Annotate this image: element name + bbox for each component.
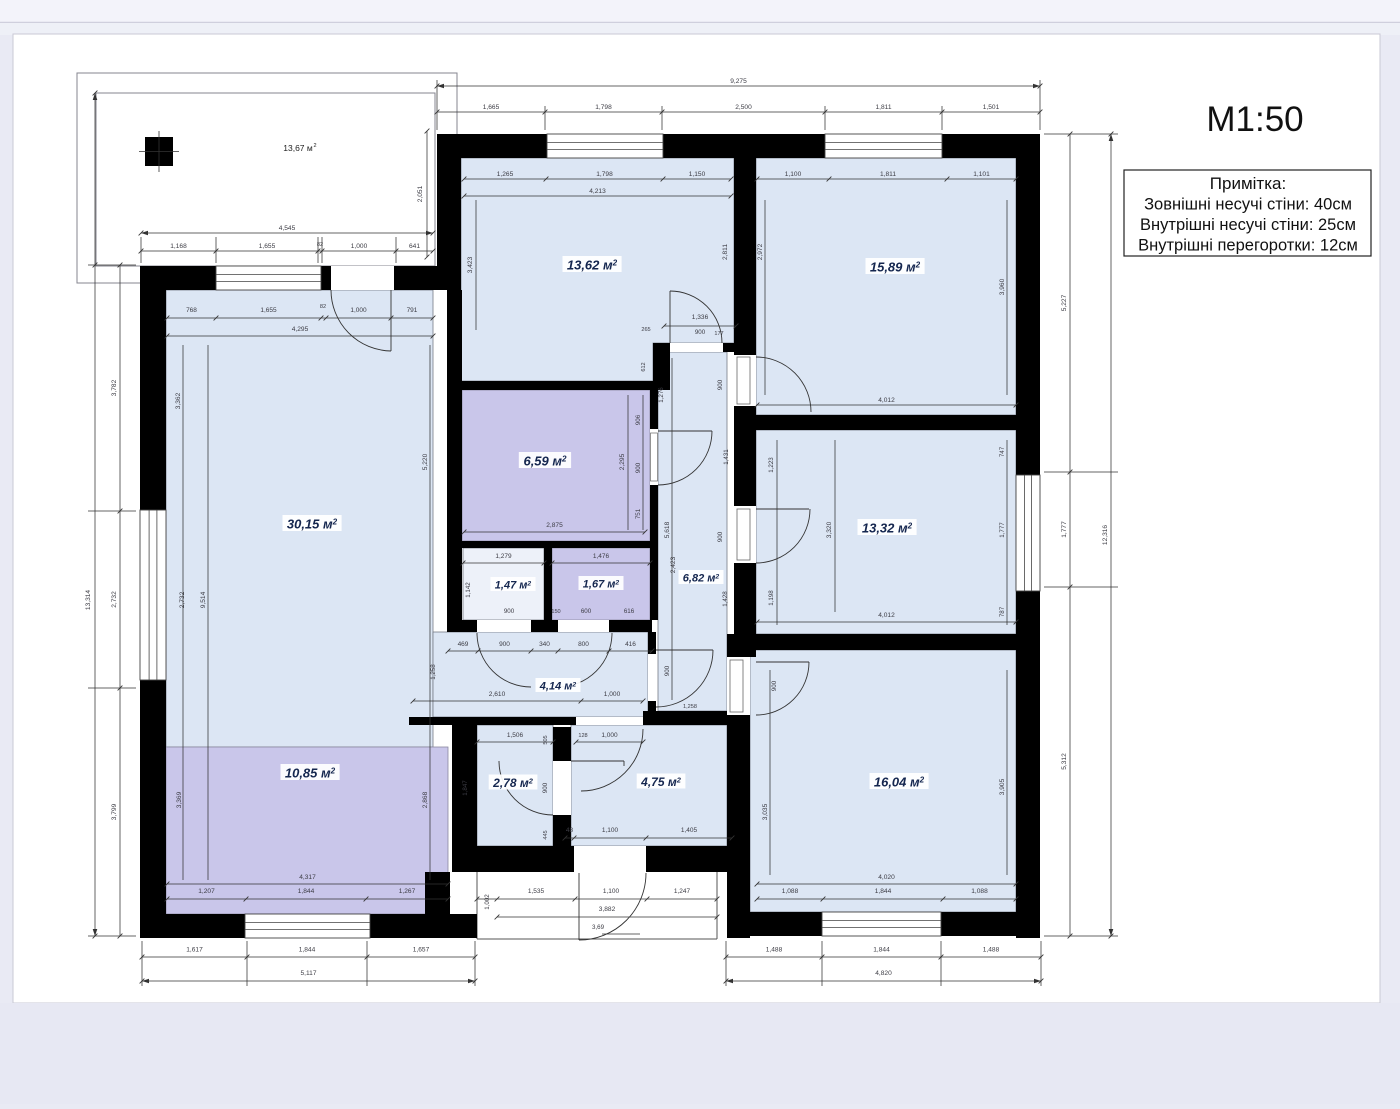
svg-text:1,47 м2: 1,47 м2 <box>495 580 532 592</box>
svg-text:4,14 м2: 4,14 м2 <box>539 681 577 693</box>
svg-text:1,488: 1,488 <box>983 947 1000 954</box>
svg-text:1,101: 1,101 <box>973 171 990 178</box>
svg-text:1,000: 1,000 <box>601 732 618 739</box>
svg-text:Внутрішні несучі стіни: 25см: Внутрішні несучі стіни: 25см <box>1140 216 1356 234</box>
svg-text:1,100: 1,100 <box>785 171 802 178</box>
svg-text:4,317: 4,317 <box>299 874 316 881</box>
svg-text:2,732: 2,732 <box>111 591 118 608</box>
svg-text:30,15 м2: 30,15 м2 <box>287 516 338 531</box>
svg-text:1,088: 1,088 <box>971 888 988 895</box>
svg-text:1,100: 1,100 <box>602 827 619 834</box>
svg-text:1,617: 1,617 <box>186 947 203 954</box>
svg-text:16,04 м2: 16,04 м2 <box>874 774 925 789</box>
svg-text:1,258: 1,258 <box>430 664 437 680</box>
svg-text:6,59 м2: 6,59 м2 <box>523 453 567 468</box>
svg-text:416: 416 <box>625 641 636 648</box>
svg-text:1,476: 1,476 <box>593 553 610 560</box>
svg-text:5,117: 5,117 <box>300 970 316 977</box>
svg-text:15,89 м2: 15,89 м2 <box>870 259 921 274</box>
svg-text:469: 469 <box>458 641 469 648</box>
svg-text:2,295: 2,295 <box>619 453 626 470</box>
svg-text:9,275: 9,275 <box>730 78 747 85</box>
svg-text:4,213: 4,213 <box>589 188 606 195</box>
svg-text:1,777: 1,777 <box>1061 521 1068 538</box>
svg-text:612: 612 <box>641 362 647 371</box>
svg-text:Зовнішні несучі стіни: 40см: Зовнішні несучі стіни: 40см <box>1144 196 1352 214</box>
svg-text:13,314: 13,314 <box>85 590 92 611</box>
svg-text:1,847: 1,847 <box>462 780 469 796</box>
svg-text:1,000: 1,000 <box>350 307 367 314</box>
svg-text:5,227: 5,227 <box>1061 294 1068 311</box>
svg-text:3,69: 3,69 <box>592 924 605 931</box>
svg-text:M1:50: M1:50 <box>1206 100 1303 139</box>
svg-text:1,247: 1,247 <box>674 888 691 895</box>
svg-text:13,62 м2: 13,62 м2 <box>567 257 618 272</box>
svg-text:1,655: 1,655 <box>260 307 277 314</box>
svg-text:2,868: 2,868 <box>422 791 429 808</box>
svg-text:4,012: 4,012 <box>878 612 895 619</box>
svg-text:900: 900 <box>695 329 706 336</box>
svg-text:1,844: 1,844 <box>298 888 315 895</box>
svg-text:1,142: 1,142 <box>465 582 472 598</box>
svg-text:800: 800 <box>578 641 589 648</box>
svg-text:906: 906 <box>635 414 642 425</box>
svg-text:3,782: 3,782 <box>111 379 118 396</box>
svg-text:1,67 м2: 1,67 м2 <box>583 579 620 591</box>
svg-text:4,820: 4,820 <box>875 970 892 977</box>
svg-text:1,844: 1,844 <box>875 888 892 895</box>
svg-text:2,78 м2: 2,78 м2 <box>492 776 534 790</box>
svg-text:6,82 м2: 6,82 м2 <box>683 573 720 585</box>
svg-text:1,665: 1,665 <box>483 104 500 111</box>
svg-text:1,798: 1,798 <box>596 171 613 178</box>
svg-text:2,610: 2,610 <box>489 691 506 698</box>
svg-text:1,198: 1,198 <box>768 590 775 606</box>
svg-text:900: 900 <box>635 462 642 473</box>
svg-text:1,088: 1,088 <box>782 888 799 895</box>
svg-text:Примітка:: Примітка: <box>1210 174 1286 193</box>
svg-text:445: 445 <box>543 830 549 839</box>
svg-text:1,405: 1,405 <box>681 827 698 834</box>
svg-text:1,265: 1,265 <box>497 171 514 178</box>
svg-text:768: 768 <box>186 307 197 314</box>
svg-text:616: 616 <box>624 608 635 615</box>
svg-text:4,545: 4,545 <box>279 225 296 232</box>
svg-text:1,811: 1,811 <box>880 171 896 178</box>
svg-text:900: 900 <box>717 379 724 390</box>
svg-text:1,798: 1,798 <box>595 104 612 111</box>
svg-text:1,207: 1,207 <box>198 888 215 895</box>
svg-text:2,051: 2,051 <box>417 185 424 202</box>
svg-text:3,320: 3,320 <box>826 521 833 538</box>
svg-text:265: 265 <box>641 327 650 333</box>
svg-text:82: 82 <box>320 304 326 310</box>
svg-text:747: 747 <box>999 446 1006 457</box>
svg-text:340: 340 <box>539 641 550 648</box>
svg-text:3,362: 3,362 <box>175 392 182 409</box>
svg-text:1,844: 1,844 <box>873 947 890 954</box>
svg-text:1,100: 1,100 <box>603 888 620 895</box>
svg-text:1,501: 1,501 <box>983 104 1000 111</box>
svg-text:48: 48 <box>566 827 574 834</box>
svg-text:4,75 м2: 4,75 м2 <box>640 775 682 789</box>
svg-text:600: 600 <box>581 608 592 615</box>
svg-text:1,150: 1,150 <box>689 171 706 178</box>
svg-text:1,336: 1,336 <box>692 314 709 321</box>
svg-text:787: 787 <box>999 606 1006 617</box>
svg-text:1,844: 1,844 <box>299 947 316 954</box>
svg-text:751: 751 <box>635 508 642 519</box>
svg-text:4,012: 4,012 <box>878 397 895 404</box>
svg-text:900: 900 <box>499 641 510 648</box>
svg-text:1,428: 1,428 <box>722 591 729 607</box>
svg-text:150: 150 <box>551 609 560 615</box>
svg-text:1,168: 1,168 <box>170 243 187 250</box>
svg-text:2,875: 2,875 <box>546 522 563 529</box>
svg-text:791: 791 <box>407 307 418 314</box>
svg-text:5,618: 5,618 <box>664 521 671 538</box>
svg-text:9,514: 9,514 <box>200 591 207 608</box>
svg-text:900: 900 <box>542 782 549 793</box>
svg-text:3,960: 3,960 <box>999 278 1006 295</box>
svg-text:900: 900 <box>664 665 671 676</box>
svg-text:641: 641 <box>409 243 420 250</box>
svg-text:12,316: 12,316 <box>1102 525 1109 546</box>
svg-text:13,67 м: 13,67 м <box>283 143 313 153</box>
svg-text:1,488: 1,488 <box>766 947 783 954</box>
svg-text:3,369: 3,369 <box>176 791 183 808</box>
svg-text:1,276: 1,276 <box>658 387 665 403</box>
svg-text:2,811: 2,811 <box>722 244 729 260</box>
svg-text:128: 128 <box>578 733 587 739</box>
svg-text:1,258: 1,258 <box>683 704 697 710</box>
svg-text:2,972: 2,972 <box>757 243 764 260</box>
svg-text:2,423: 2,423 <box>670 556 677 573</box>
svg-text:3,905: 3,905 <box>999 778 1006 795</box>
svg-text:2,500: 2,500 <box>735 104 752 111</box>
svg-text:3,423: 3,423 <box>467 256 474 273</box>
svg-text:5,220: 5,220 <box>422 453 429 470</box>
svg-text:1,655: 1,655 <box>259 243 276 250</box>
svg-text:1,223: 1,223 <box>768 457 775 473</box>
svg-text:13,32 м2: 13,32 м2 <box>862 520 913 535</box>
svg-text:1,267: 1,267 <box>399 888 416 895</box>
svg-text:1,811: 1,811 <box>875 104 891 111</box>
svg-text:1,002: 1,002 <box>484 894 491 910</box>
svg-text:Внутрішні перегоротки: 12см: Внутрішні перегоротки: 12см <box>1138 237 1358 255</box>
svg-text:3,882: 3,882 <box>599 906 616 913</box>
svg-text:4,295: 4,295 <box>292 326 309 333</box>
svg-text:2: 2 <box>313 143 316 149</box>
svg-text:10,85 м2: 10,85 м2 <box>285 765 336 780</box>
svg-text:5,312: 5,312 <box>1061 753 1068 770</box>
svg-text:177: 177 <box>714 331 723 337</box>
svg-text:1,431: 1,431 <box>723 449 730 465</box>
svg-text:3,799: 3,799 <box>111 803 118 820</box>
svg-text:900: 900 <box>717 531 724 542</box>
svg-text:1,279: 1,279 <box>495 553 512 560</box>
svg-text:1,000: 1,000 <box>351 243 368 250</box>
svg-text:900: 900 <box>504 608 515 615</box>
svg-text:1,000: 1,000 <box>604 691 621 698</box>
svg-text:4,020: 4,020 <box>878 874 895 881</box>
svg-text:505: 505 <box>543 735 549 744</box>
svg-text:3,035: 3,035 <box>762 803 769 820</box>
svg-text:1,535: 1,535 <box>528 888 545 895</box>
svg-text:900: 900 <box>771 680 778 691</box>
svg-text:1,657: 1,657 <box>413 947 430 954</box>
svg-text:1,777: 1,777 <box>999 522 1006 538</box>
svg-text:2,732: 2,732 <box>179 591 186 608</box>
svg-text:1,506: 1,506 <box>507 732 524 739</box>
